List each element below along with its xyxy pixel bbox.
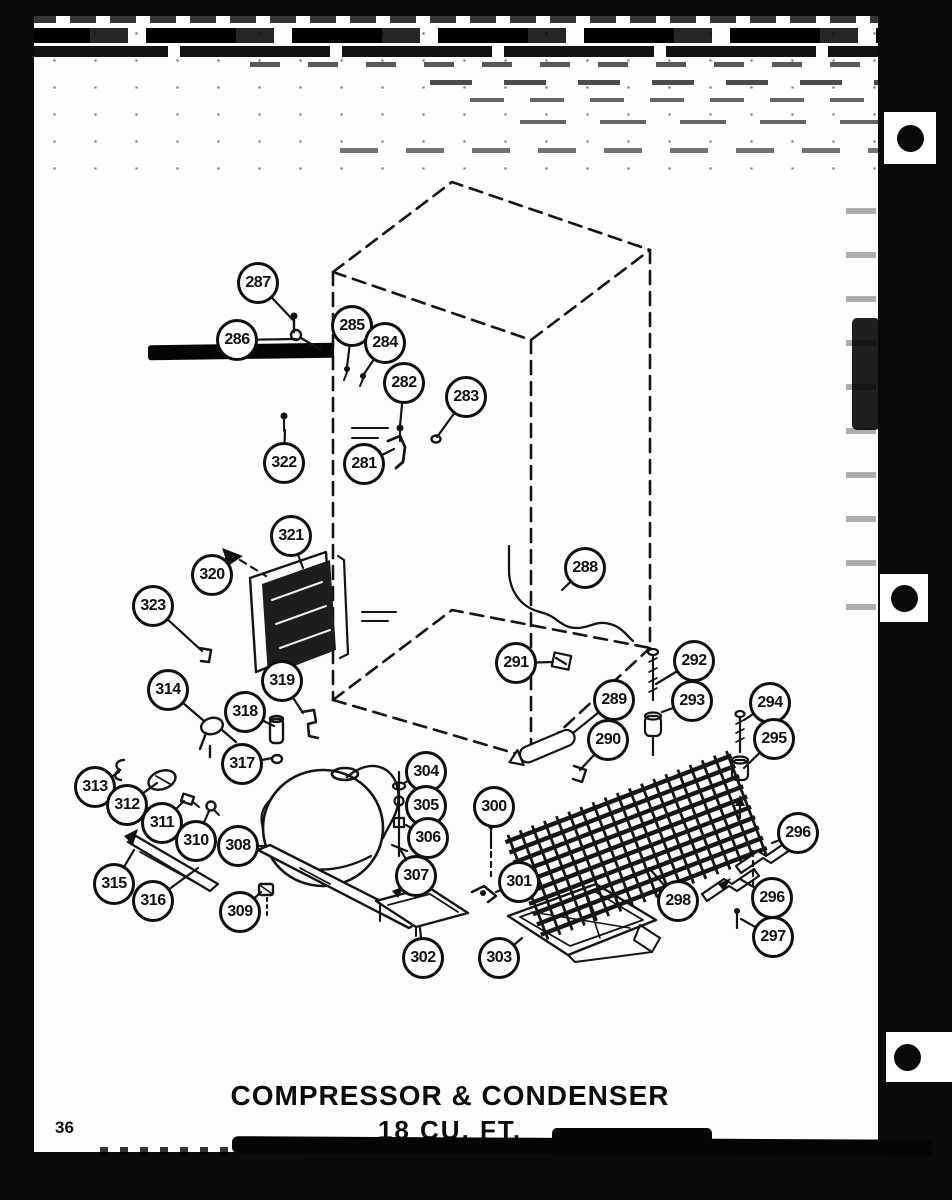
drain-fitting [552,652,572,669]
callout-297: 297 [752,916,794,958]
callout-289: 289 [593,679,635,721]
scan-ink-smear [232,1136,932,1157]
callout-291: 291 [495,642,537,684]
callout-298: 298 [657,880,699,922]
callout-308: 308 [217,825,259,867]
callout-301: 301 [498,861,540,903]
callout-314: 314 [147,669,189,711]
callout-319: 319 [261,660,303,702]
compressor-mount-rail [258,845,420,928]
callout-296-lower: 296 [751,877,793,919]
callout-309: 309 [219,891,261,933]
drier-tube [506,727,586,782]
callout-303: 303 [478,937,520,979]
callout-317: 317 [221,743,263,785]
callout-293: 293 [671,680,713,722]
base-screw-clip [472,823,496,902]
callout-283: 283 [445,376,487,418]
callout-286: 286 [216,319,258,361]
callout-316: 316 [132,880,174,922]
callout-281: 281 [343,443,385,485]
callout-302: 302 [402,937,444,979]
scan-noise-speckle [100,1147,240,1155]
callout-290: 290 [587,719,629,761]
callout-292: 292 [673,640,715,682]
callout-296-upper: 296 [777,812,819,854]
callout-300: 300 [473,786,515,828]
callout-322: 322 [263,442,305,484]
compressor-body [262,766,399,886]
scanned-page: 287 286 285 284 282 283 322 281 321 320 … [0,0,952,1200]
page-number: 36 [55,1118,74,1138]
callout-321: 321 [270,515,312,557]
callout-282: 282 [383,362,425,404]
callout-307: 307 [395,855,437,897]
callout-315: 315 [93,863,135,905]
callout-306: 306 [407,817,449,859]
callout-295: 295 [753,718,795,760]
callout-323: 323 [132,585,174,627]
diagram-title: COMPRESSOR & CONDENSER [170,1080,730,1112]
callout-287: 287 [237,262,279,304]
callout-288: 288 [564,547,606,589]
callout-318: 318 [224,691,266,733]
callout-310: 310 [175,820,217,862]
callout-320: 320 [191,554,233,596]
callout-284: 284 [364,322,406,364]
